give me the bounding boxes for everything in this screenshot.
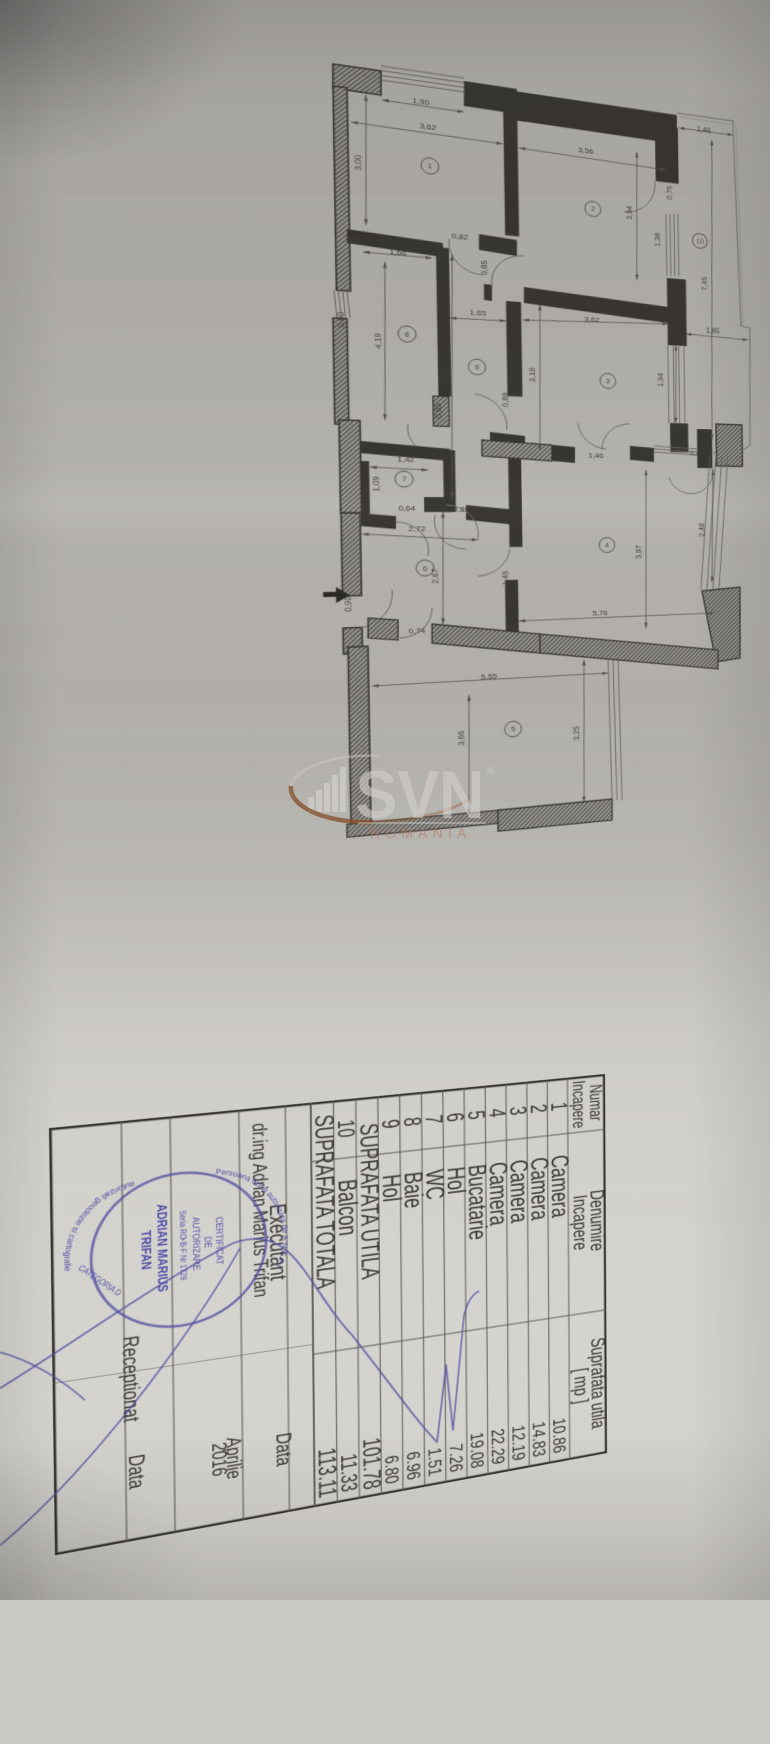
svg-text:1,46: 1,46 <box>697 125 711 135</box>
svg-text:5,76: 5,76 <box>592 609 607 618</box>
svg-text:6.96: 6.96 <box>403 1450 425 1482</box>
svg-text:4,19: 4,19 <box>373 333 383 349</box>
svg-text:TRIFAN: TRIFAN <box>138 1229 154 1270</box>
svg-text:2,48: 2,48 <box>698 523 706 537</box>
svg-text:DE: DE <box>202 1236 214 1249</box>
svg-text:SUPRAFATA TOTALA: SUPRAFATA TOTALA <box>309 1113 340 1290</box>
svg-text:1,85: 1,85 <box>706 327 720 336</box>
svg-text:0,64: 0,64 <box>398 504 415 513</box>
svg-text:3,56: 3,56 <box>578 146 593 156</box>
svg-text:3,66: 3,66 <box>457 730 467 746</box>
svg-text:5: 5 <box>511 726 516 734</box>
svg-text:2,67: 2,67 <box>431 568 441 583</box>
svg-text:0,75: 0,75 <box>666 185 675 200</box>
svg-text:2016: 2016 <box>207 1441 231 1478</box>
svg-text:Data: Data <box>124 1452 150 1491</box>
svg-text:19.08: 19.08 <box>467 1431 488 1470</box>
svg-text:0,80: 0,80 <box>336 312 347 328</box>
svg-text:7.26: 7.26 <box>446 1442 468 1474</box>
svg-text:3: 3 <box>606 378 610 386</box>
svg-text:1: 1 <box>428 162 433 171</box>
svg-text:6: 6 <box>423 565 428 573</box>
svg-text:9: 9 <box>475 364 480 372</box>
svg-text:4: 4 <box>605 542 609 550</box>
svg-text:0,80: 0,80 <box>690 449 704 457</box>
svg-text:1,38: 1,38 <box>653 232 662 247</box>
svg-text:0,74: 0,74 <box>408 626 425 635</box>
svg-text:0,65: 0,65 <box>433 403 443 418</box>
svg-text:3,87: 3,87 <box>635 545 644 559</box>
svg-text:1,45: 1,45 <box>501 571 511 586</box>
svg-text:12.19: 12.19 <box>508 1423 529 1462</box>
svg-text:1.51: 1.51 <box>424 1446 446 1478</box>
svg-text:3,62: 3,62 <box>584 315 599 324</box>
svg-text:0,85: 0,85 <box>480 260 490 276</box>
svg-text:2,72: 2,72 <box>408 524 425 533</box>
svg-text:0,82: 0,82 <box>452 232 469 242</box>
svg-text:0,88: 0,88 <box>501 392 511 407</box>
svg-text:1,09: 1,09 <box>371 476 381 492</box>
svg-text:113.11: 113.11 <box>313 1446 341 1500</box>
svg-text:7,45: 7,45 <box>701 276 709 291</box>
svg-text:1,94: 1,94 <box>657 373 666 387</box>
svg-text:14.83: 14.83 <box>529 1420 550 1459</box>
svg-text:CERTIFICAT: CERTIFICAT <box>214 1216 226 1266</box>
svg-text:10: 10 <box>696 237 704 245</box>
svg-text:7: 7 <box>402 476 407 484</box>
svg-text:2: 2 <box>591 206 595 214</box>
svg-text:1,90: 1,90 <box>412 96 429 107</box>
svg-text:1,65: 1,65 <box>470 308 487 318</box>
svg-text:10.86: 10.86 <box>549 1416 570 1454</box>
svg-text:3,19: 3,19 <box>528 367 537 382</box>
svg-text:3,94: 3,94 <box>625 205 634 220</box>
svg-text:3,25: 3,25 <box>572 726 581 741</box>
svg-text:0,90: 0,90 <box>343 596 354 612</box>
svg-text:22.29: 22.29 <box>488 1427 509 1466</box>
svg-text:1,66: 1,66 <box>389 248 406 258</box>
svg-text:Incapere: Incapere <box>569 1080 589 1130</box>
svg-text:0,89: 0,89 <box>453 505 470 514</box>
svg-text:3,62: 3,62 <box>419 121 436 132</box>
svg-text:5,58: 5,58 <box>440 365 450 381</box>
svg-text:3,00: 3,00 <box>353 154 364 171</box>
svg-text:[ mp ]: [ mp ] <box>570 1366 592 1405</box>
svg-text:Data: Data <box>272 1431 297 1469</box>
svg-text:1,42: 1,42 <box>397 455 414 464</box>
svg-text:8: 8 <box>405 330 410 338</box>
svg-text:1,46: 1,46 <box>588 452 603 461</box>
svg-text:Receptionat: Receptionat <box>118 1334 145 1424</box>
svg-text:5,55: 5,55 <box>481 672 497 682</box>
